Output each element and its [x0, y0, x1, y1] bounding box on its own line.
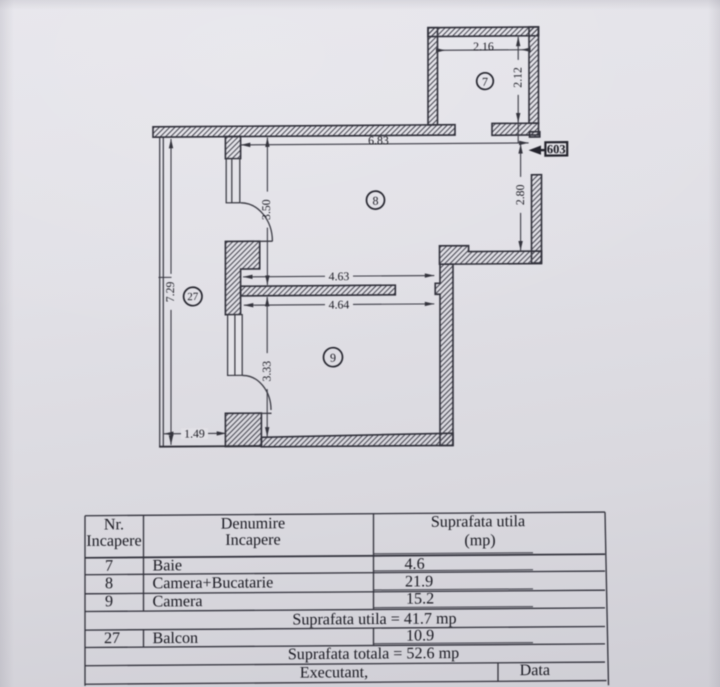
svg-text:7: 7 — [105, 558, 113, 575]
svg-text:4.64: 4.64 — [329, 297, 350, 311]
svg-text:Suprafata utila = 41.7 mp: Suprafata utila = 41.7 mp — [292, 610, 456, 628]
svg-text:603: 603 — [547, 142, 566, 156]
svg-text:27: 27 — [104, 630, 120, 647]
svg-text:2.80: 2.80 — [513, 184, 527, 205]
svg-text:3.50: 3.50 — [259, 199, 273, 220]
svg-text:10.9: 10.9 — [406, 627, 434, 644]
svg-text:Camera: Camera — [153, 593, 203, 610]
svg-text:Suprafata utila: Suprafata utila — [431, 513, 525, 531]
svg-text:Executant,: Executant, — [300, 664, 368, 681]
svg-text:Balcon: Balcon — [153, 630, 199, 647]
svg-text:9: 9 — [105, 593, 113, 610]
svg-text:6.83: 6.83 — [368, 133, 389, 147]
svg-text:Incapere: Incapere — [86, 533, 141, 550]
svg-text:8: 8 — [105, 575, 113, 592]
svg-text:4.6: 4.6 — [405, 556, 425, 573]
svg-text:Baie: Baie — [153, 557, 182, 574]
svg-text:Denumire: Denumire — [221, 515, 285, 532]
svg-text:4.63: 4.63 — [329, 269, 350, 283]
svg-text:21.9: 21.9 — [405, 573, 433, 590]
svg-text:1.49: 1.49 — [184, 426, 205, 440]
svg-text:7: 7 — [482, 75, 488, 89]
svg-text:15.2: 15.2 — [406, 590, 434, 607]
svg-text:2.12: 2.12 — [511, 67, 525, 88]
svg-text:9: 9 — [330, 351, 336, 365]
svg-text:Camera+Bucatarie: Camera+Bucatarie — [153, 574, 274, 592]
svg-text:27: 27 — [187, 291, 198, 303]
svg-text:Data: Data — [520, 662, 550, 679]
svg-text:(mp): (mp) — [464, 532, 495, 549]
svg-text:3.33: 3.33 — [259, 361, 273, 382]
svg-text:Nr.: Nr. — [104, 516, 124, 533]
svg-text:Suprafata totala = 52.6 mp: Suprafata totala = 52.6 mp — [288, 645, 459, 663]
svg-text:8: 8 — [373, 194, 379, 208]
svg-text:2.16: 2.16 — [473, 39, 494, 53]
svg-text:Incapere: Incapere — [225, 532, 280, 549]
svg-text:7.29: 7.29 — [163, 281, 177, 302]
